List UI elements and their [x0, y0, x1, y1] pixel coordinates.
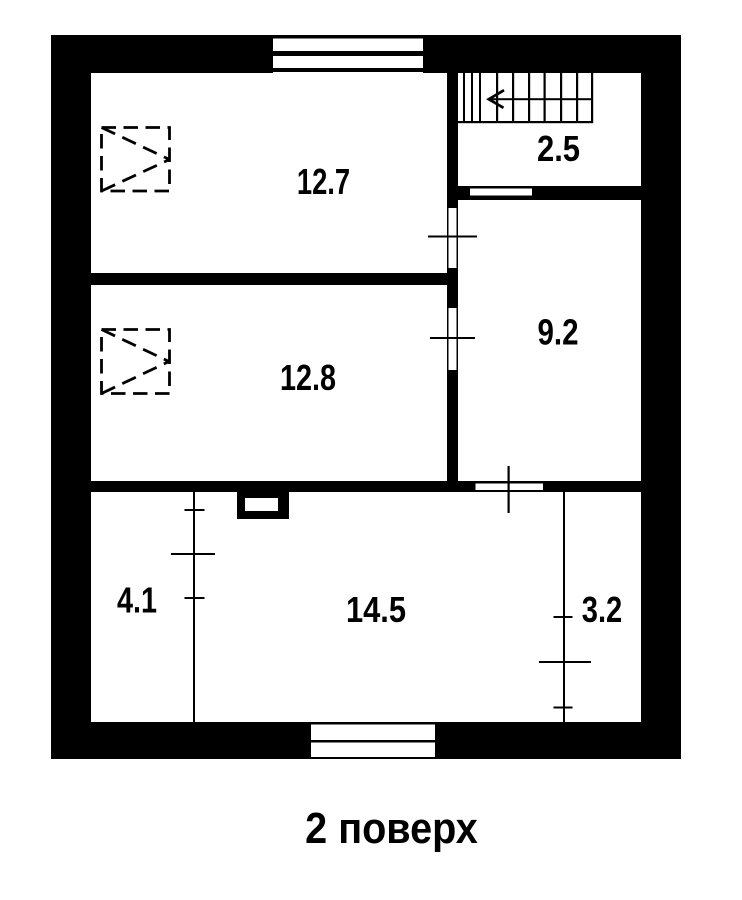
- svg-text:14.5: 14.5: [346, 591, 406, 631]
- svg-text:12.8: 12.8: [280, 357, 336, 398]
- svg-text:2.5: 2.5: [537, 130, 580, 170]
- svg-text:4.1: 4.1: [117, 579, 157, 620]
- svg-text:9.2: 9.2: [537, 312, 578, 352]
- svg-text:12.7: 12.7: [297, 161, 350, 202]
- svg-text:3.2: 3.2: [582, 589, 623, 630]
- svg-text:2 поверх: 2 поверх: [305, 803, 478, 852]
